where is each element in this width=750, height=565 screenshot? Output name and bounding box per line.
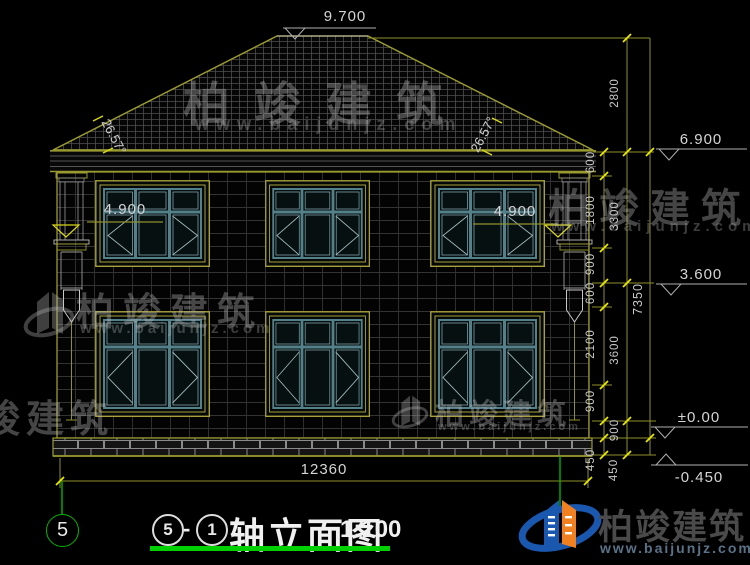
title-axis-end: 1 xyxy=(196,514,228,546)
watermark-url-center: www.baijunjz.com xyxy=(438,421,581,433)
axis-bubble-5: 5 xyxy=(46,514,79,547)
level-eave: 6.900 xyxy=(656,131,746,148)
brand-logo xyxy=(518,500,603,556)
level-ridge: 9.700 xyxy=(300,8,390,25)
plinth xyxy=(53,438,592,456)
level-grade: -0.450 xyxy=(654,469,744,486)
dim-plinth-height: 900 xyxy=(609,398,621,462)
watermark-brand-partial: 柏竣建筑 xyxy=(0,388,114,443)
dim-total-height: 7350 xyxy=(631,267,645,331)
brand-url: www.baijunjz.com xyxy=(600,540,750,556)
title-axis-start: 5 xyxy=(152,514,184,546)
level-sill-right: 4.900 xyxy=(470,203,560,220)
dim-floor1-height: 3600 xyxy=(609,318,621,382)
dim-roof-height: 2800 xyxy=(609,61,621,125)
elevation-drawing-canvas: 9.700 6.900 3.600 ±0.00 -0.450 4.900 4.9… xyxy=(0,0,750,565)
watermark-url-left: www.baijunjz.com xyxy=(80,320,273,337)
dim-seg-900b: 900 xyxy=(585,369,597,433)
title-underline xyxy=(150,546,390,551)
dim-seg-450a: 450 xyxy=(585,428,597,492)
level-sill-left: 4.900 xyxy=(80,201,170,218)
drawing-scale: 1:100 xyxy=(340,516,401,544)
title-dash: - xyxy=(183,516,190,542)
dim-total-width: 12360 xyxy=(279,461,369,478)
level-ground: ±0.00 xyxy=(654,409,744,426)
dim-seg-2100: 2100 xyxy=(585,312,597,376)
watermark-url-top: www.baijunjz.com xyxy=(195,114,462,135)
level-floor2: 3.600 xyxy=(656,266,746,283)
watermark-url-right: www.baijunjz.com xyxy=(551,218,750,235)
